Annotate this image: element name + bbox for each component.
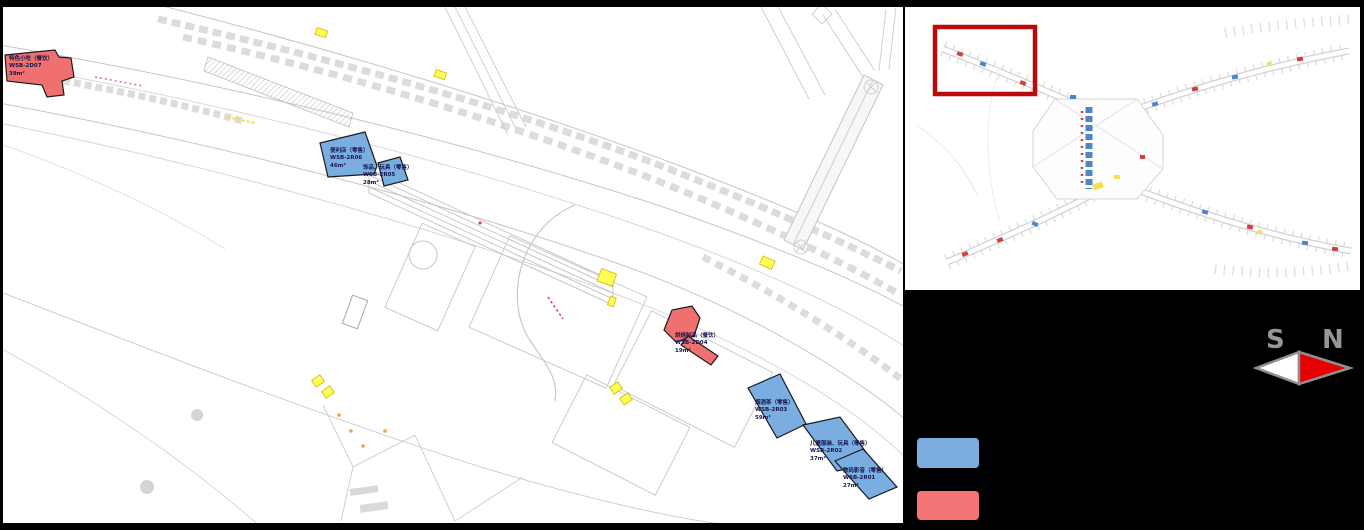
shop-name: 烘焙制品（餐饮） bbox=[675, 333, 719, 340]
shop-label-wsb-2d04: 烘焙制品（餐饮） WSB-2D04 19m² bbox=[675, 333, 719, 355]
shop-name: 数码影音（零售） bbox=[843, 468, 887, 475]
kiosk-rows bbox=[63, 19, 901, 379]
compass-red-half bbox=[1299, 352, 1350, 384]
track-lines bbox=[369, 169, 613, 305]
shop-label-wsb-2r02: 儿童服装、玩具（零售） WSB-2R02 37m² bbox=[810, 441, 871, 463]
legend-swatches bbox=[917, 438, 979, 521]
overview-minimap[interactable] bbox=[905, 7, 1360, 290]
plan-drawing bbox=[3, 7, 903, 523]
shop-area: 28m² bbox=[363, 180, 413, 187]
shop-code: WSB-2R05 bbox=[363, 172, 413, 179]
shop-name: 特色小吃（餐饮） bbox=[9, 56, 53, 63]
shop-label-wsb-2r05: 饰品、玩具（零售） WSB-2R05 28m² bbox=[363, 165, 413, 187]
minimap-drawing bbox=[905, 7, 1360, 290]
compass-north-label: N bbox=[1322, 325, 1344, 355]
legend-swatch-retail bbox=[917, 438, 979, 468]
shop-area: 27m² bbox=[843, 483, 887, 490]
main-plan[interactable]: 特色小吃（餐饮） WSB-2D07 39m² 便利店（零售） WSB-2R06 … bbox=[3, 7, 903, 523]
shop-area: 39m² bbox=[9, 71, 53, 78]
orange-dot-marks bbox=[337, 413, 387, 448]
shop-name: 便利店（零售） bbox=[330, 148, 369, 155]
shop-name: 烟酒茶（零售） bbox=[755, 400, 794, 407]
shop-name: 饰品、玩具（零售） bbox=[363, 165, 413, 172]
shop-code: WSB-2R01 bbox=[843, 475, 887, 482]
legend-swatch-dining bbox=[917, 491, 979, 520]
compass-white-half bbox=[1256, 352, 1299, 384]
shop-area: 37m² bbox=[810, 456, 871, 463]
shop-code: WSB-2R02 bbox=[810, 448, 871, 455]
shop-code: WSB-2R03 bbox=[755, 407, 794, 414]
shop-label-wsb-2r01: 数码影音（零售） WSB-2R01 27m² bbox=[843, 468, 887, 490]
compass-rose: S N bbox=[1250, 316, 1356, 394]
shop-label-wsb-2d07: 特色小吃（餐饮） WSB-2D07 39m² bbox=[9, 56, 53, 78]
corridors bbox=[443, 7, 896, 254]
central-building-linework bbox=[323, 205, 773, 521]
compass: S N bbox=[1250, 316, 1356, 394]
shop-name: 儿童服装、玩具（零售） bbox=[810, 441, 871, 448]
shop-area: 59m² bbox=[755, 415, 794, 422]
shop-label-wsb-2r03: 烟酒茶（零售） WSB-2R03 59m² bbox=[755, 400, 794, 422]
shop-area: 19m² bbox=[675, 348, 719, 355]
floorplan-viewer: 特色小吃（餐饮） WSB-2D07 39m² 便利店（零售） WSB-2R06 … bbox=[0, 0, 1364, 530]
compass-south-label: S bbox=[1266, 325, 1285, 355]
legend bbox=[917, 438, 979, 521]
shop-code: WSB-2D04 bbox=[675, 340, 719, 347]
shop-code: WSB-2D07 bbox=[9, 63, 53, 70]
shop-code: WSB-2R06 bbox=[330, 155, 369, 162]
